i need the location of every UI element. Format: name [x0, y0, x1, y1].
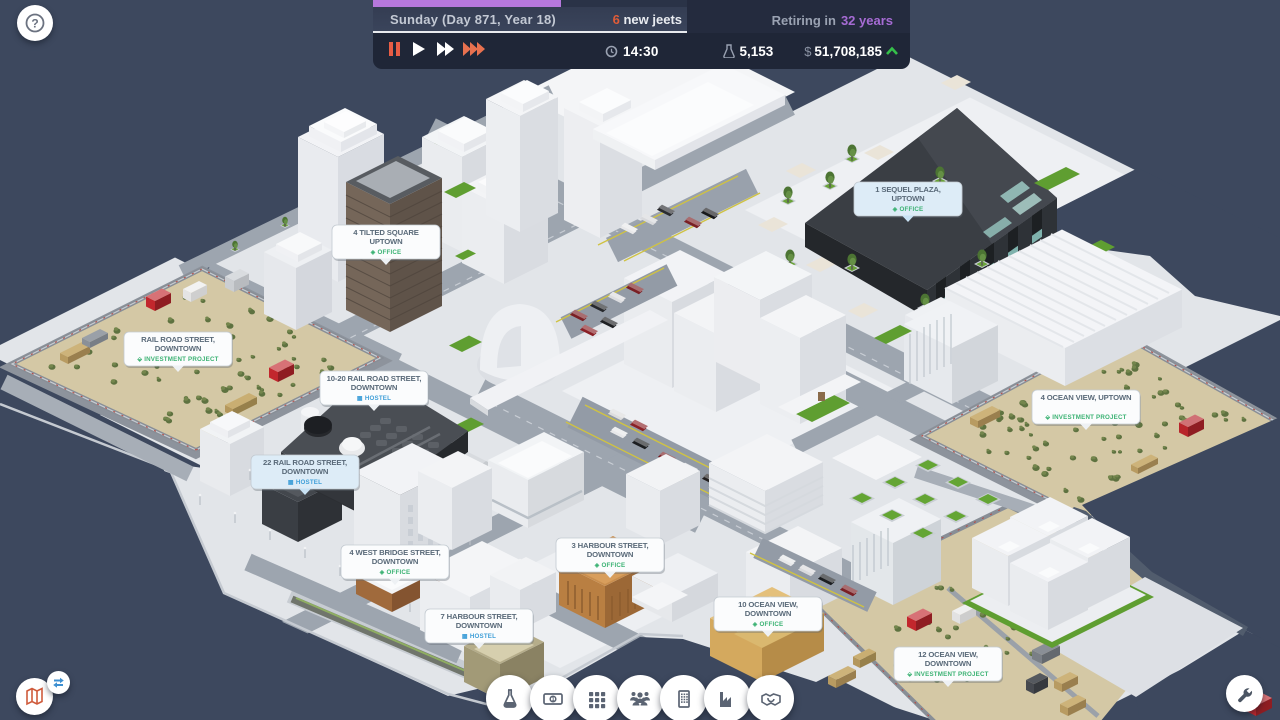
svg-text:10 OCEAN VIEW,: 10 OCEAN VIEW,	[738, 600, 798, 609]
svg-text:DOWNTOWN: DOWNTOWN	[456, 621, 503, 630]
svg-text:⬙ INVESTMENT PROJECT: ⬙ INVESTMENT PROJECT	[136, 356, 218, 363]
svg-text:DOWNTOWN: DOWNTOWN	[925, 659, 972, 668]
svg-text:◈ OFFICE: ◈ OFFICE	[892, 206, 924, 213]
svg-text:▦ HOSTEL: ▦ HOSTEL	[462, 633, 496, 640]
svg-text:10-20 RAIL ROAD STREET,: 10-20 RAIL ROAD STREET,	[327, 374, 422, 383]
svg-text:⬙ INVESTMENT PROJECT: ⬙ INVESTMENT PROJECT	[1044, 414, 1126, 421]
svg-text:7 HARBOUR STREET,: 7 HARBOUR STREET,	[441, 612, 518, 621]
svg-text:DOWNTOWN: DOWNTOWN	[282, 467, 329, 476]
svg-text:3 HARBOUR STREET,: 3 HARBOUR STREET,	[572, 541, 649, 550]
svg-text:◈ OFFICE: ◈ OFFICE	[379, 569, 411, 576]
svg-text:22 RAIL ROAD STREET,: 22 RAIL ROAD STREET,	[263, 458, 347, 467]
svg-text:DOWNTOWN: DOWNTOWN	[745, 609, 792, 618]
svg-text:DOWNTOWN: DOWNTOWN	[587, 550, 634, 559]
svg-text:UPTOWN: UPTOWN	[891, 194, 925, 203]
svg-text:◈ OFFICE: ◈ OFFICE	[752, 621, 784, 628]
svg-text:1 SEQUEL PLAZA,: 1 SEQUEL PLAZA,	[875, 185, 941, 194]
svg-text:4 WEST BRIDGE STREET,: 4 WEST BRIDGE STREET,	[349, 548, 440, 557]
svg-text:?: ?	[31, 17, 38, 31]
svg-text:UPTOWN: UPTOWN	[369, 237, 403, 246]
svg-text:▦ HOSTEL: ▦ HOSTEL	[288, 479, 322, 486]
svg-text:◈ OFFICE: ◈ OFFICE	[594, 562, 626, 569]
svg-text:DOWNTOWN: DOWNTOWN	[155, 344, 202, 353]
svg-text:4 TILTED SQUARE: 4 TILTED SQUARE	[353, 228, 419, 237]
svg-text:RAIL ROAD STREET,: RAIL ROAD STREET,	[141, 335, 215, 344]
svg-text:12 OCEAN VIEW,: 12 OCEAN VIEW,	[918, 650, 978, 659]
svg-text:4 OCEAN VIEW, UPTOWN: 4 OCEAN VIEW, UPTOWN	[1041, 393, 1132, 402]
svg-text:▦ HOSTEL: ▦ HOSTEL	[357, 395, 391, 402]
svg-text:⬙ INVESTMENT PROJECT: ⬙ INVESTMENT PROJECT	[906, 671, 988, 678]
svg-text:DOWNTOWN: DOWNTOWN	[351, 383, 398, 392]
svg-text:◈ OFFICE: ◈ OFFICE	[370, 249, 402, 256]
svg-text:DOWNTOWN: DOWNTOWN	[372, 557, 419, 566]
